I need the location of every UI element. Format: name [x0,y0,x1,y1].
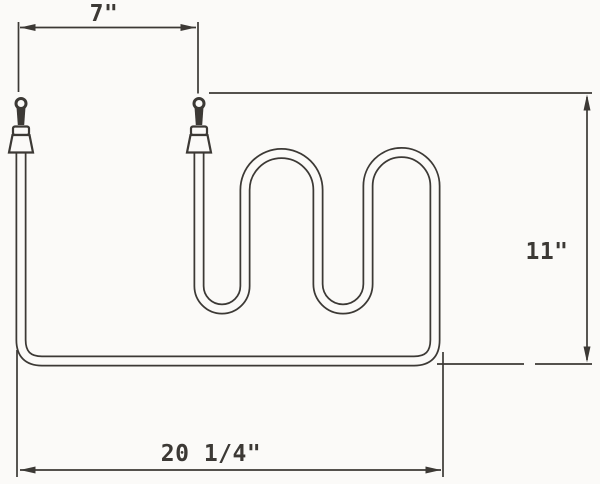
terminal-left [9,99,33,153]
arrowhead-left-icon [20,24,36,31]
terminal-right-base [187,135,211,153]
terminal-right-cap [191,127,207,136]
arrowhead-right-icon [181,24,197,31]
dimension-label-terminal-spacing: 7" [90,1,119,27]
drawing-sheet: 7" 11" 20 1/4" [0,0,600,484]
dimension-label-overall-height: 11" [525,239,568,265]
heating-element-tube [21,150,435,361]
arrowhead-down-icon [584,347,591,363]
dimension-overall-height: 11" [209,93,592,364]
dimension-terminal-spacing: 7" [19,1,199,94]
terminal-left-cap [13,127,29,136]
arrowhead-right-icon [426,467,442,474]
tube-outline [21,150,435,361]
terminal-right [187,99,211,153]
arrowhead-up-icon [584,95,591,111]
dimension-label-overall-width: 20 1/4" [161,441,261,467]
terminal-left-stem [17,107,26,125]
arrowhead-left-icon [20,467,36,474]
dimension-overall-width: 20 1/4" [17,350,443,477]
terminal-right-stem [195,107,204,125]
terminal-left-base [9,135,33,153]
technical-drawing-canvas: 7" 11" 20 1/4" [0,0,600,484]
